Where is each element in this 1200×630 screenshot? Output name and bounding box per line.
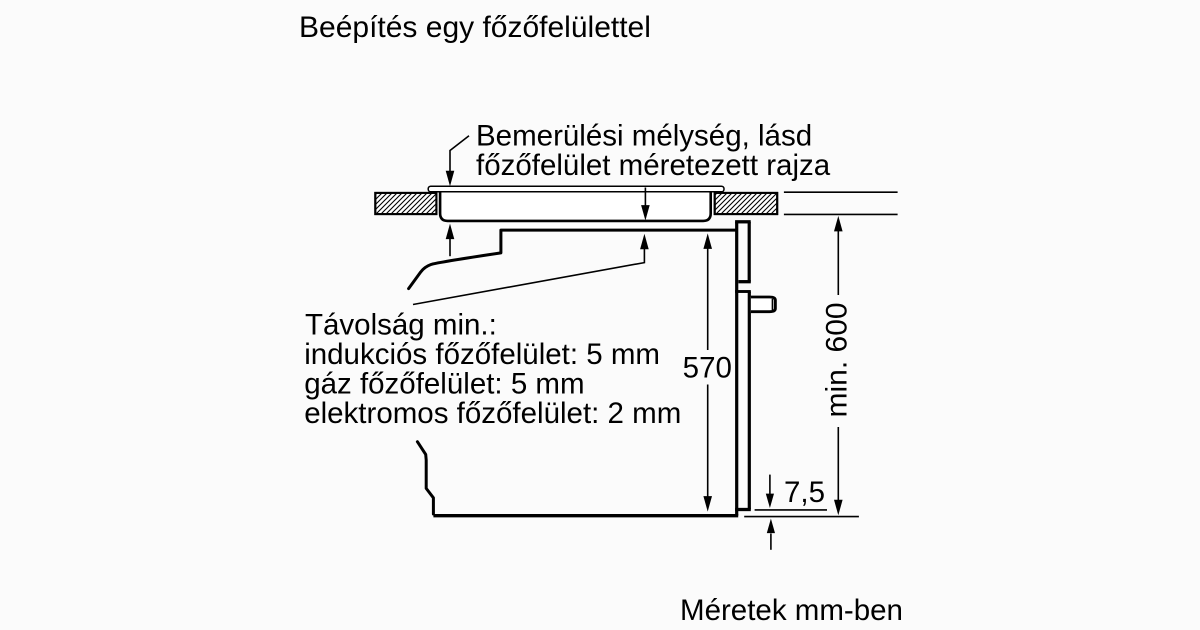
svg-text:Beépítés egy főzőfelülettel: Beépítés egy főzőfelülettel <box>299 11 651 44</box>
svg-text:7,5: 7,5 <box>784 476 825 509</box>
svg-text:Méretek mm-ben: Méretek mm-ben <box>680 594 903 627</box>
svg-text:Bemerülési mélység, lásd: Bemerülési mélység, lásd <box>476 120 812 153</box>
svg-text:min. 600: min. 600 <box>820 302 853 417</box>
svg-text:elektromos főzőfelület: 2 mm: elektromos főzőfelület: 2 mm <box>304 397 681 430</box>
svg-text:Távolság min.:: Távolság min.: <box>305 308 497 341</box>
svg-text:indukciós főzőfelület: 5 mm: indukciós főzőfelület: 5 mm <box>304 338 660 371</box>
svg-text:főzőfelület méretezett rajza: főzőfelület méretezett rajza <box>476 149 831 182</box>
svg-text:gáz főzőfelület: 5 mm: gáz főzőfelület: 5 mm <box>304 367 584 400</box>
svg-text:570: 570 <box>683 352 732 385</box>
